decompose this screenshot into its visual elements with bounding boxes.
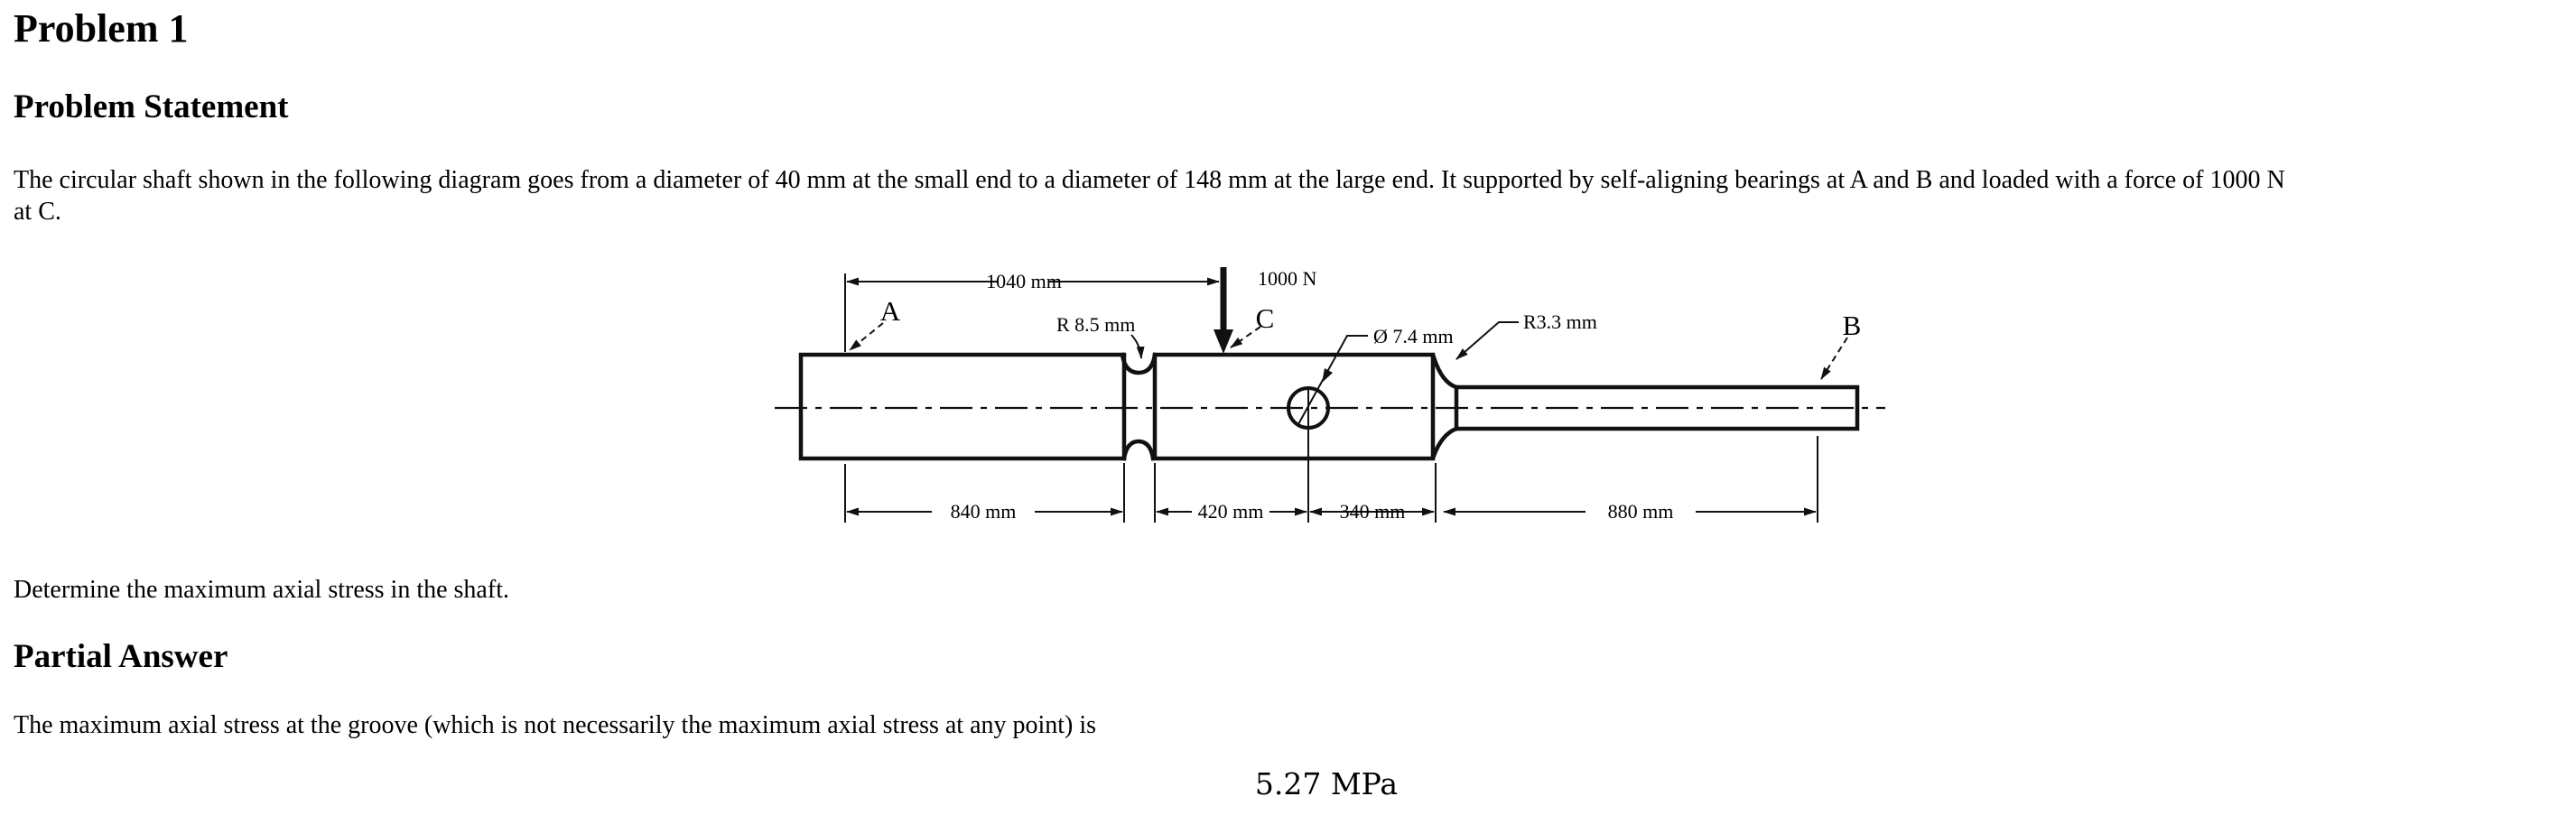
question-text: Determine the maximum axial stress in th… xyxy=(14,576,509,605)
point-c-label: C xyxy=(1256,302,1275,334)
shaft-diagram: 1040 mm 1000 N A C B R 8.5 mm Ø 7.4 mm R… xyxy=(0,0,2576,815)
bearing-b-label: B xyxy=(1843,310,1862,341)
dim-340: 340 mm xyxy=(1340,500,1406,523)
partial-answer-heading: Partial Answer xyxy=(14,637,228,676)
fillet-radius-label: R3.3 mm xyxy=(1523,310,1597,333)
groove-radius-label: R 8.5 mm xyxy=(1056,313,1135,336)
force-arrow xyxy=(1214,267,1233,354)
partial-answer-text: The maximum axial stress at the groove (… xyxy=(14,711,1096,740)
dim-420: 420 mm xyxy=(1198,500,1264,523)
dim-840: 840 mm xyxy=(951,500,1017,523)
answer-value: 5.27 MPa xyxy=(0,766,2576,801)
bearing-a-label: A xyxy=(880,295,901,327)
dim-1040: 1040 mm xyxy=(986,270,1062,292)
hole-leader-arrowhead xyxy=(1322,368,1333,383)
dimension-lines xyxy=(847,282,1816,512)
force-label: 1000 N xyxy=(1258,267,1317,290)
extension-lines xyxy=(845,273,1818,523)
hole-diameter-label: Ø 7.4 mm xyxy=(1373,325,1454,347)
dim-880: 880 mm xyxy=(1608,500,1674,523)
